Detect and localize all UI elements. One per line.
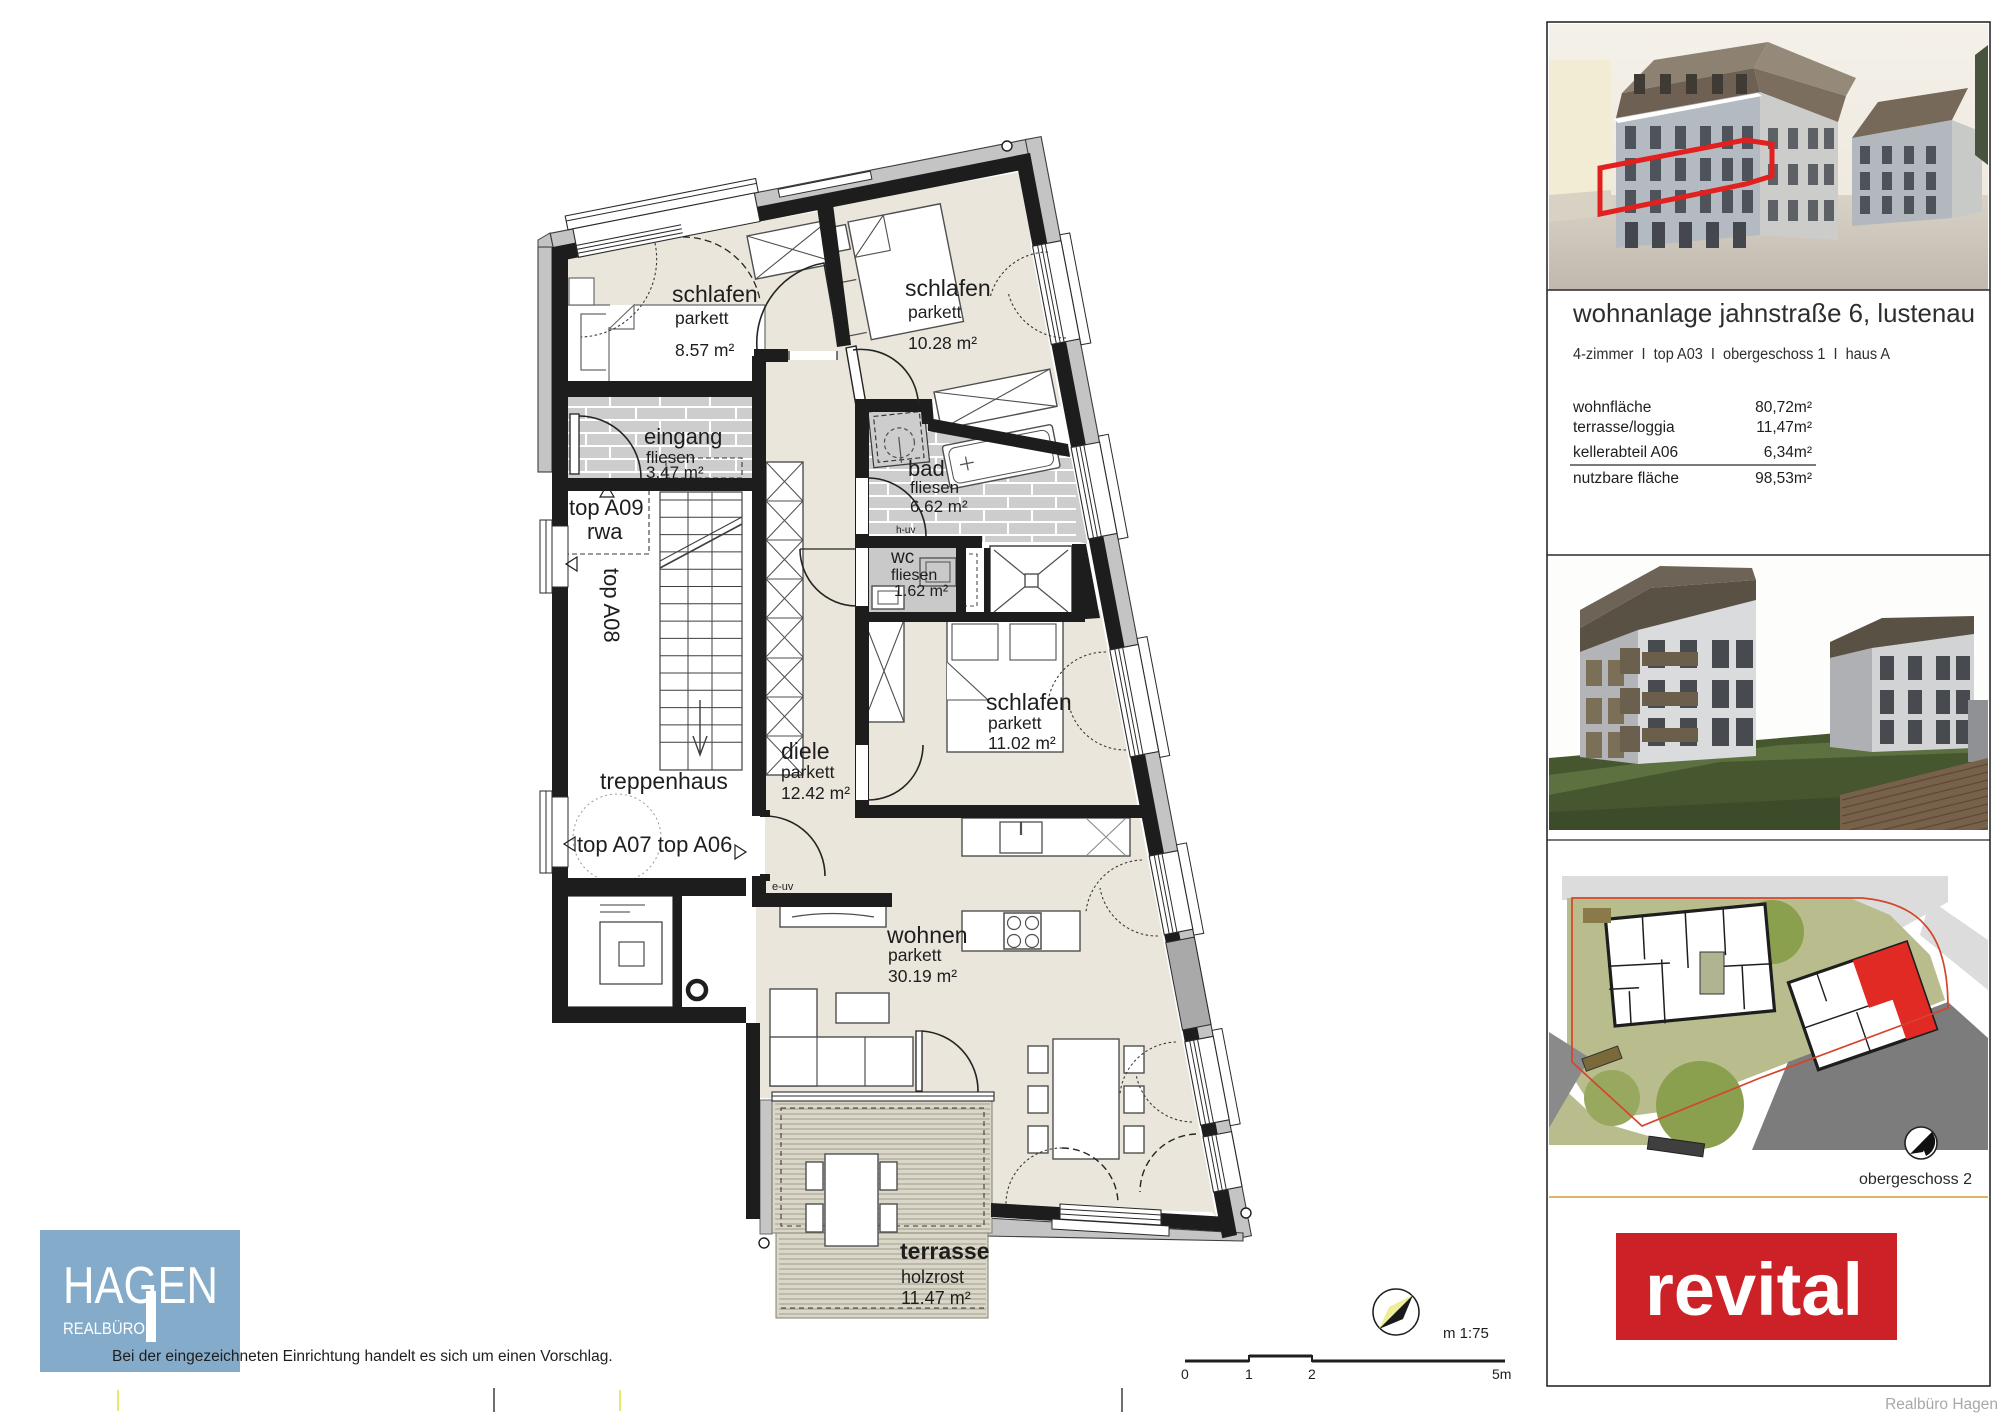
svg-text:nutzbare fläche: nutzbare fläche (1573, 470, 1679, 487)
svg-text:holzrost: holzrost (901, 1267, 964, 1287)
svg-text:6.62 m²: 6.62 m² (910, 497, 968, 516)
svg-text:5m: 5m (1492, 1366, 1511, 1382)
svg-text:parkett: parkett (781, 762, 835, 782)
svg-text:h-uv: h-uv (896, 525, 915, 536)
svg-text:terrasse/loggia: terrasse/loggia (1573, 419, 1675, 436)
svg-text:revital: revital (1645, 1248, 1863, 1331)
svg-text:eingang: eingang (644, 424, 722, 449)
svg-text:0: 0 (1181, 1366, 1189, 1382)
svg-text:wohnanlage jahnstraße 6, luste: wohnanlage jahnstraße 6, lustenau (1572, 298, 1975, 328)
svg-text:top A07 top A06: top A07 top A06 (577, 832, 732, 857)
svg-text:1.62 m²: 1.62 m² (894, 583, 949, 600)
svg-text:Bei der eingezeichneten Einric: Bei der eingezeichneten Einrichtung hand… (112, 1348, 613, 1365)
svg-text:11.02 m²: 11.02 m² (988, 733, 1056, 753)
svg-text:wc: wc (890, 547, 914, 568)
svg-text:HAGEN: HAGEN (63, 1257, 218, 1315)
svg-text:terrasse: terrasse (900, 1238, 990, 1264)
svg-text:parkett: parkett (675, 308, 729, 328)
svg-text:11.47 m²: 11.47 m² (901, 1288, 971, 1308)
svg-text:kellerabteil A06: kellerabteil A06 (1573, 444, 1678, 461)
svg-text:top A09: top A09 (569, 495, 644, 520)
svg-text:fliesen: fliesen (891, 567, 937, 584)
svg-text:schlafen: schlafen (986, 689, 1072, 715)
svg-text:parkett: parkett (988, 713, 1042, 733)
svg-text:REALBÜRO: REALBÜRO (63, 1319, 145, 1338)
svg-text:4-zimmer I top A03 I oberg: 4-zimmer I top A03 I obergeschoss 1 I ha… (1573, 346, 1891, 363)
svg-text:m 1:75: m 1:75 (1443, 1325, 1489, 1342)
svg-text:6,34m²: 6,34m² (1764, 444, 1812, 461)
svg-text:30.19 m²: 30.19 m² (888, 966, 957, 986)
svg-text:top A08: top A08 (599, 568, 624, 643)
svg-text:diele: diele (781, 738, 830, 764)
svg-text:3.47 m²: 3.47 m² (646, 463, 704, 482)
svg-text:parkett: parkett (908, 302, 962, 322)
svg-text:2: 2 (1308, 1366, 1316, 1382)
svg-text:schlafen: schlafen (905, 275, 991, 301)
svg-text:8.57 m²: 8.57 m² (675, 340, 734, 360)
svg-text:98,53m²: 98,53m² (1755, 470, 1812, 487)
svg-text:rwa: rwa (587, 519, 623, 544)
svg-text:fliesen: fliesen (910, 478, 959, 497)
svg-text:10.28 m²: 10.28 m² (908, 333, 977, 353)
svg-text:wohnfläche: wohnfläche (1572, 399, 1651, 416)
svg-text:obergeschoss 2: obergeschoss 2 (1859, 1171, 1972, 1188)
svg-text:e-uv: e-uv (772, 881, 794, 893)
svg-text:schlafen: schlafen (672, 281, 758, 307)
svg-text:1: 1 (1245, 1366, 1253, 1382)
svg-text:Realbüro Hagen: Realbüro Hagen (1885, 1396, 1998, 1413)
svg-text:80,72m²: 80,72m² (1755, 399, 1812, 416)
svg-text:11,47m²: 11,47m² (1756, 419, 1812, 436)
svg-text:treppenhaus: treppenhaus (600, 768, 728, 794)
svg-text:parkett: parkett (888, 945, 942, 965)
svg-text:12.42 m²: 12.42 m² (781, 783, 850, 803)
